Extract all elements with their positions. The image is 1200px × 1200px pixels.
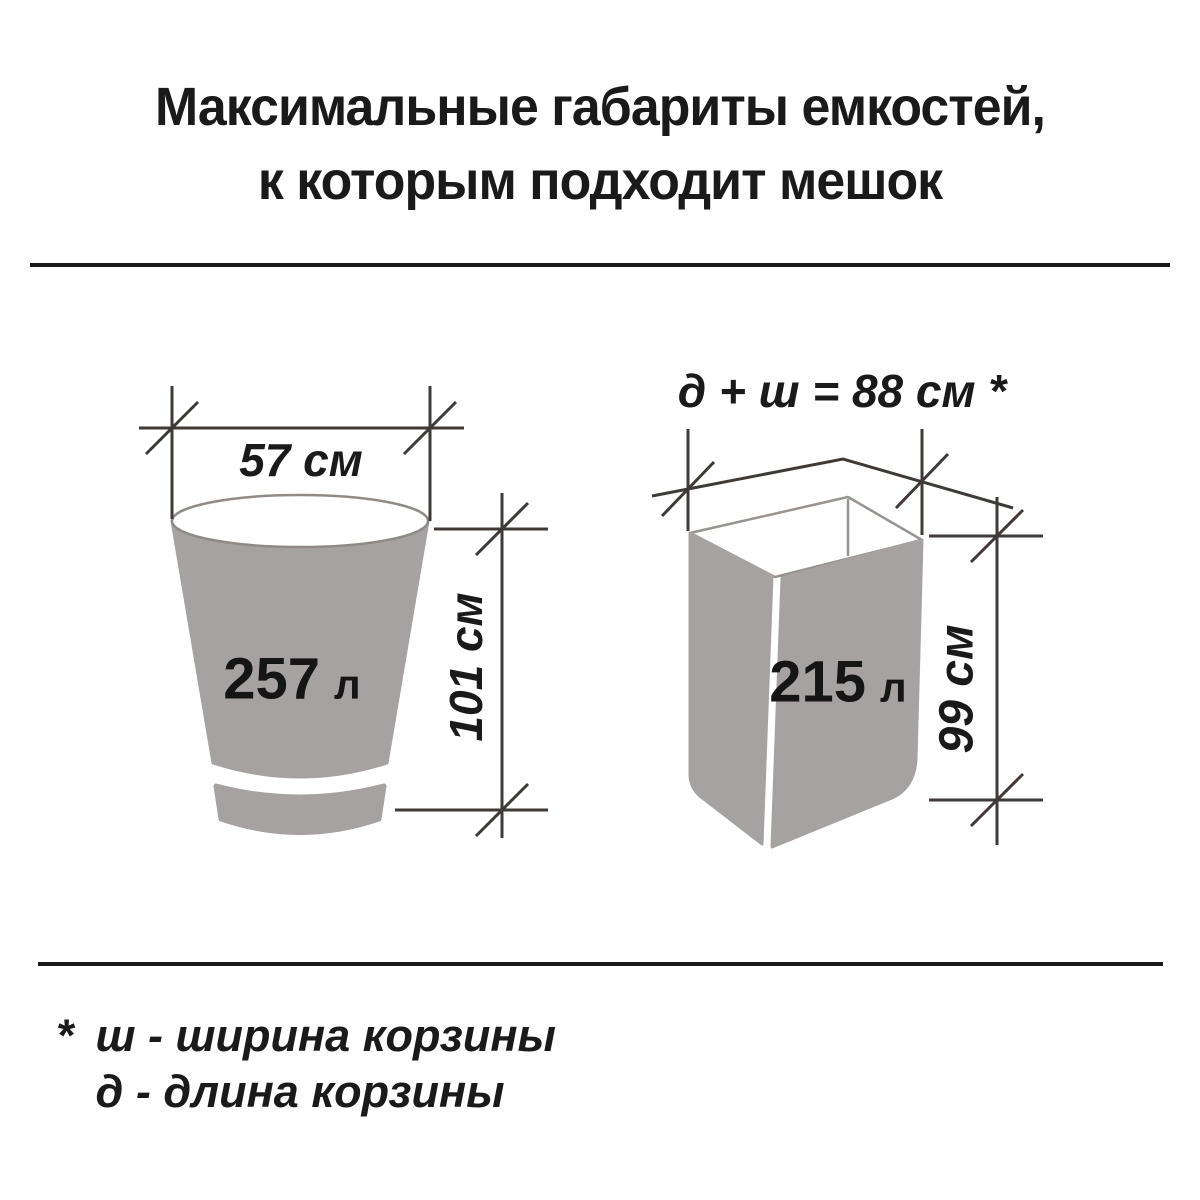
footnote-lines: ш - ширина корзины д - длина корзины xyxy=(96,1008,556,1120)
bin-left-face xyxy=(690,533,772,844)
bucket-height-label: 101 см xyxy=(439,592,493,741)
footnote-line2: д - длина корзины xyxy=(96,1064,556,1120)
bucket-width-label: 57 см xyxy=(239,433,363,487)
page-title-line1: Максимальные габариты емкостей, xyxy=(24,70,1176,144)
footnote-asterisk: * xyxy=(56,1008,74,1064)
footnote-line1: ш - ширина корзины xyxy=(96,1008,556,1064)
bucket-rim-ellipse xyxy=(172,495,428,547)
bin-top-formula-label: д + ш = 88 см * xyxy=(678,364,1006,418)
bucket-volume-label: 257л xyxy=(223,646,360,713)
page-title: Максимальные габариты емкостей, к которы… xyxy=(24,70,1176,218)
infographic-canvas: Максимальные габариты емкостей, к которы… xyxy=(0,0,1200,1200)
bucket-base-band xyxy=(216,786,384,833)
footnote: * ш - ширина корзины д - длина корзины xyxy=(56,1008,556,1120)
page-title-line2: к которым подходит мешок xyxy=(24,144,1176,218)
bucket-volume-unit: л xyxy=(334,661,361,708)
bin-volume-label: 215л xyxy=(769,649,906,716)
bin-volume-unit: л xyxy=(880,664,907,711)
bucket-volume-value: 257 xyxy=(223,647,320,712)
bin-height-label: 99 см xyxy=(930,625,985,754)
bin-volume-value: 215 xyxy=(769,650,866,715)
